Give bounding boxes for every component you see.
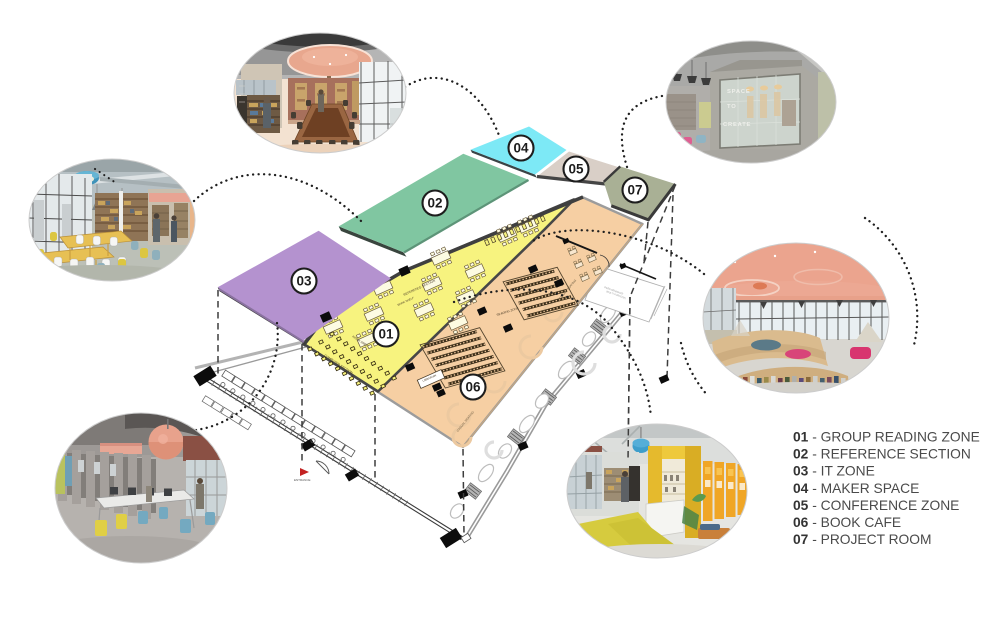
svg-text:04 - MAKER SPACE: 04 - MAKER SPACE [793,481,919,496]
svg-text:04: 04 [513,141,529,156]
svg-text:TO: TO [727,104,737,110]
svg-text:06 - BOOK CAFE: 06 - BOOK CAFE [793,515,901,530]
svg-text:03: 03 [296,274,312,289]
svg-text:SPACE: SPACE [727,89,751,95]
svg-text:01 - GROUP READING ZONE: 01 - GROUP READING ZONE [793,430,980,445]
svg-text:CREATE: CREATE [723,122,751,128]
svg-text:06: 06 [465,380,481,395]
svg-text:ENTRANCE: ENTRANCE [294,478,311,482]
svg-text:07: 07 [627,183,642,198]
svg-text:05 - CONFERENCE ZONE: 05 - CONFERENCE ZONE [793,498,959,513]
svg-text:02: 02 [427,196,442,211]
svg-text:02 - REFERENCE SECTION: 02 - REFERENCE SECTION [793,447,971,462]
svg-text:05: 05 [568,162,584,177]
svg-text:07 - PROJECT ROOM: 07 - PROJECT ROOM [793,532,932,547]
svg-text:03 - IT ZONE: 03 - IT ZONE [793,464,875,479]
svg-text:01: 01 [378,327,394,342]
